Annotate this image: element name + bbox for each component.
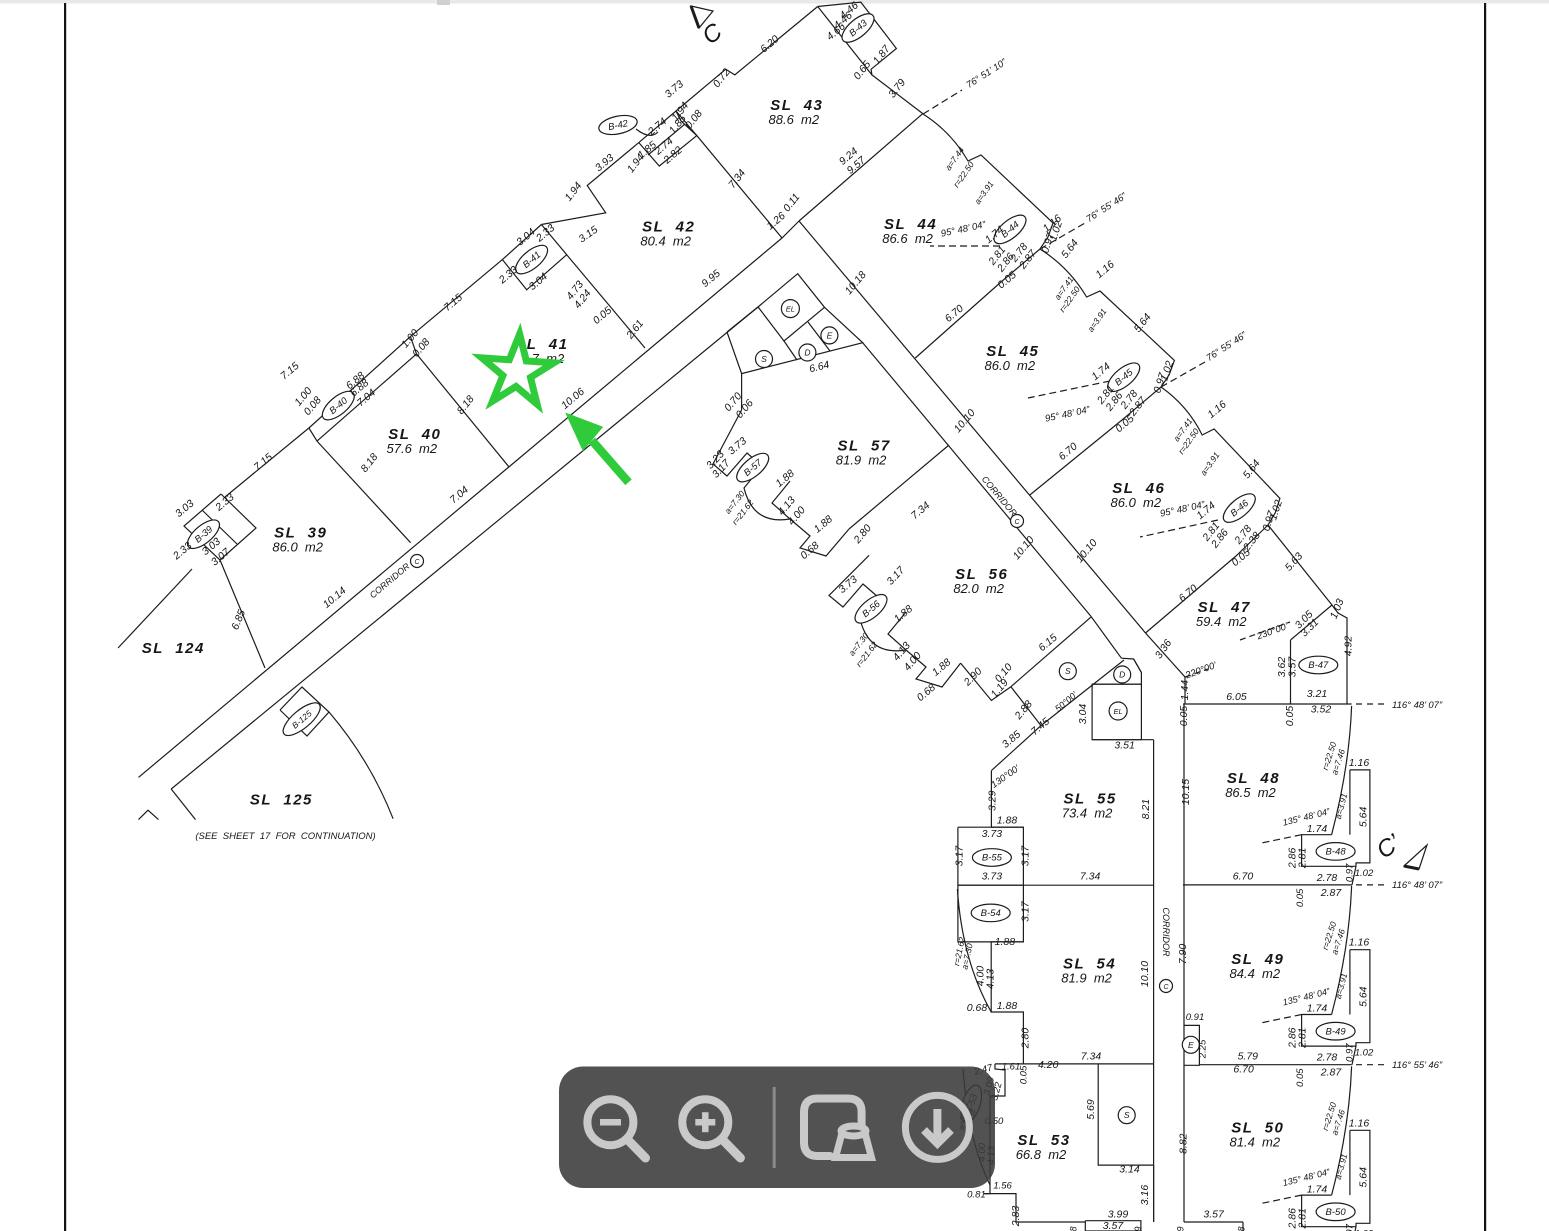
svg-text:3.57: 3.57 <box>1103 1220 1125 1231</box>
svg-text:2.78: 2.78 <box>1316 1052 1338 1064</box>
svg-text:3.29: 3.29 <box>987 790 999 811</box>
svg-text:9: 9 <box>1133 1226 1143 1231</box>
svg-text:1.02: 1.02 <box>1355 868 1374 879</box>
svg-text:3.14: 3.14 <box>1119 1164 1140 1176</box>
svg-text:0.91: 0.91 <box>1186 1012 1205 1023</box>
svg-text:B‑50: B‑50 <box>1326 1207 1347 1218</box>
svg-text:3.73: 3.73 <box>982 871 1003 883</box>
svg-text:88.6 m2: 88.6 m2 <box>769 112 820 127</box>
svg-text:1.74: 1.74 <box>1307 1003 1328 1015</box>
svg-text:(SEE SHEET 17 FOR CONTINUA: (SEE SHEET 17 FOR CONTINUATION) <box>195 831 375 842</box>
svg-text:10.10: 10.10 <box>1139 961 1151 987</box>
svg-text:7.90: 7.90 <box>1177 944 1189 965</box>
svg-text:81.4 m2: 81.4 m2 <box>1230 1134 1281 1149</box>
svg-text:B‑47: B‑47 <box>1308 660 1329 671</box>
svg-text:116° 48’ 07”: 116° 48’ 07” <box>1392 880 1443 891</box>
svg-text:116° 55’ 46”: 116° 55’ 46” <box>1392 1060 1443 1071</box>
svg-text:2.81: 2.81 <box>1297 1027 1309 1048</box>
svg-text:8.21: 8.21 <box>1140 799 1152 819</box>
svg-text:4.13: 4.13 <box>985 969 997 990</box>
svg-text:5.79: 5.79 <box>1238 1051 1259 1063</box>
svg-text:S: S <box>1065 666 1071 676</box>
svg-text:8: 8 <box>1237 1226 1247 1231</box>
svg-text:86.0 m2: 86.0 m2 <box>272 540 323 555</box>
svg-text:0.05: 0.05 <box>1019 1065 1030 1084</box>
svg-text:10.15: 10.15 <box>1180 779 1192 805</box>
svg-text:57.6 m2: 57.6 m2 <box>387 441 438 456</box>
svg-text:EL: EL <box>786 305 795 314</box>
svg-text:81.9 m2: 81.9 m2 <box>836 452 887 467</box>
svg-text:1.61: 1.61 <box>1002 1062 1021 1073</box>
svg-text:5.64: 5.64 <box>1358 807 1370 828</box>
svg-text:B‑55: B‑55 <box>982 853 1003 864</box>
svg-text:1.44: 1.44 <box>1179 680 1191 701</box>
svg-text:5.69: 5.69 <box>1085 1099 1097 1120</box>
svg-text:3.16: 3.16 <box>1139 1185 1151 1206</box>
svg-text:4.20: 4.20 <box>1038 1059 1059 1071</box>
svg-text:1.88: 1.88 <box>995 936 1016 948</box>
svg-text:2.78: 2.78 <box>1316 872 1338 884</box>
svg-text:73.4 m2: 73.4 m2 <box>1062 805 1113 820</box>
svg-text:1.02: 1.02 <box>1355 1048 1374 1059</box>
svg-text:86.0 m2: 86.0 m2 <box>1111 495 1162 510</box>
svg-text:3.17: 3.17 <box>1019 900 1031 922</box>
svg-text:3.57: 3.57 <box>1286 656 1298 678</box>
svg-text:0.97: 0.97 <box>1345 1223 1356 1231</box>
svg-text:2.25: 2.25 <box>1198 1039 1209 1059</box>
svg-text:116° 48’ 07”: 116° 48’ 07” <box>1392 700 1443 711</box>
svg-text:1.16: 1.16 <box>1349 1117 1370 1129</box>
svg-text:8.82: 8.82 <box>1178 1133 1190 1154</box>
svg-text:9: 9 <box>1176 1226 1186 1231</box>
svg-text:59.4 m2: 59.4 m2 <box>1196 614 1247 629</box>
svg-text:82.0 m2: 82.0 m2 <box>953 581 1004 596</box>
svg-text:8: 8 <box>1069 1226 1079 1231</box>
svg-text:3.51: 3.51 <box>1114 740 1134 752</box>
svg-text:1.16: 1.16 <box>1349 937 1370 949</box>
svg-text:2.87: 2.87 <box>1320 1067 1343 1079</box>
svg-text:3.17: 3.17 <box>954 845 966 867</box>
svg-text:B‑49: B‑49 <box>1326 1026 1347 1037</box>
svg-text:86.5 m2: 86.5 m2 <box>1225 785 1276 800</box>
svg-text:S: S <box>761 354 767 364</box>
svg-text:0.97: 0.97 <box>1345 1043 1356 1062</box>
svg-text:1.88: 1.88 <box>997 1000 1018 1012</box>
svg-text:1.74: 1.74 <box>1307 1183 1328 1195</box>
svg-text:E: E <box>827 330 833 340</box>
svg-text:0.05: 0.05 <box>1295 888 1306 907</box>
svg-text:80.4 m2: 80.4 m2 <box>640 233 691 248</box>
svg-text:1.74: 1.74 <box>1307 823 1328 835</box>
svg-text:66.8 m2: 66.8 m2 <box>1016 1147 1067 1162</box>
svg-text:5.64: 5.64 <box>1358 986 1370 1007</box>
svg-text:0.97: 0.97 <box>1345 863 1356 882</box>
svg-text:6.70: 6.70 <box>1233 1064 1254 1076</box>
svg-text:S: S <box>1124 1110 1130 1120</box>
svg-text:CORRIDOR: CORRIDOR <box>1161 908 1171 957</box>
svg-text:84.4 m2: 84.4 m2 <box>1230 966 1281 981</box>
svg-text:2.81: 2.81 <box>1297 1208 1309 1229</box>
svg-text:E: E <box>1188 1040 1194 1050</box>
svg-text:0.68: 0.68 <box>967 1002 988 1014</box>
svg-text:1.56: 1.56 <box>993 1180 1012 1191</box>
svg-text:2.83: 2.83 <box>1010 1206 1022 1228</box>
svg-text:4.92: 4.92 <box>1343 636 1355 657</box>
svg-text:D: D <box>804 348 810 358</box>
svg-text:D: D <box>1119 670 1125 680</box>
svg-text:0.81: 0.81 <box>967 1190 986 1201</box>
svg-text:B‑54: B‑54 <box>981 908 1001 919</box>
svg-text:5.64: 5.64 <box>1358 1167 1370 1188</box>
svg-text:EL: EL <box>1114 707 1123 716</box>
svg-text:81.9 m2: 81.9 m2 <box>1061 970 1112 985</box>
svg-text:SL 125: SL 125 <box>250 792 313 809</box>
svg-text:3.21: 3.21 <box>1307 688 1327 700</box>
svg-text:2.80: 2.80 <box>1019 1028 1031 1050</box>
svg-text:0.05: 0.05 <box>1284 706 1296 727</box>
svg-text:7.34: 7.34 <box>1081 1051 1102 1063</box>
svg-text:3.52: 3.52 <box>1311 704 1332 716</box>
svg-text:2.81: 2.81 <box>1297 848 1309 869</box>
svg-text:3.04: 3.04 <box>1077 704 1089 725</box>
svg-text:0.05: 0.05 <box>1295 1068 1306 1087</box>
svg-text:3.73: 3.73 <box>982 828 1003 840</box>
svg-text:3.17: 3.17 <box>1019 845 1031 867</box>
svg-text:86.0 m2: 86.0 m2 <box>985 358 1036 373</box>
svg-text:3.99: 3.99 <box>1108 1209 1129 1221</box>
svg-text:2.87: 2.87 <box>1320 887 1343 899</box>
svg-text:0.05: 0.05 <box>1178 706 1190 727</box>
svg-text:3.57: 3.57 <box>1203 1209 1225 1221</box>
svg-text:6.05: 6.05 <box>1226 691 1247 703</box>
svg-text:6.70: 6.70 <box>1233 871 1254 883</box>
svg-text:1.16: 1.16 <box>1349 757 1370 769</box>
svg-text:7.34: 7.34 <box>1080 871 1101 883</box>
svg-text:B‑48: B‑48 <box>1326 847 1347 858</box>
svg-text:SL 124: SL 124 <box>142 640 205 657</box>
svg-text:1.88: 1.88 <box>997 815 1018 827</box>
svg-text:86.6 m2: 86.6 m2 <box>882 231 933 246</box>
